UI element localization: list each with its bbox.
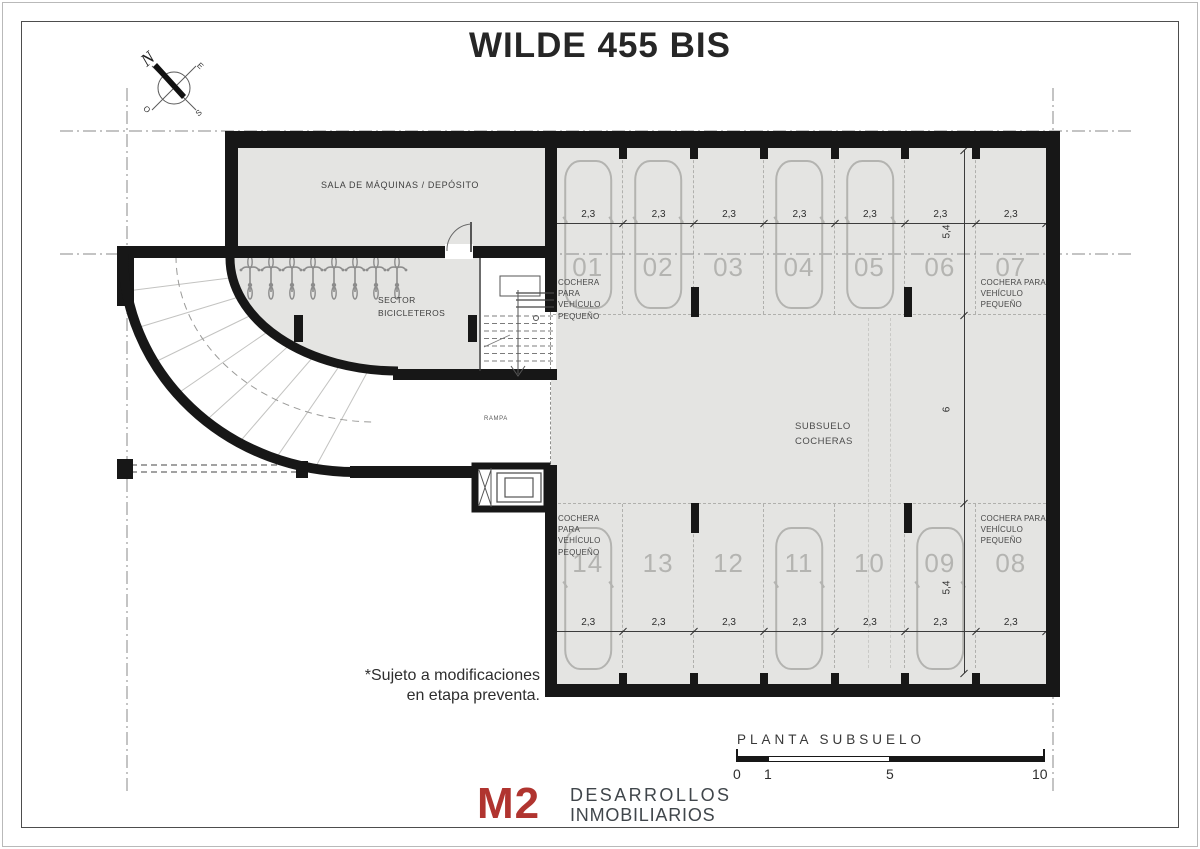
scale-bar-segment	[768, 756, 890, 762]
parking-spot-01: 01COCHERA PARAVEHÍCULOPEQUEÑO	[553, 150, 623, 314]
wall-parking-left-lower	[545, 465, 557, 697]
dimension-label: 2,3	[694, 617, 764, 628]
parking-spot-13: 13	[623, 504, 693, 668]
wall-opening-dashed-line	[550, 382, 551, 464]
bicicleteros-line1: SECTOR	[378, 294, 445, 307]
spot-number: 02	[623, 252, 692, 283]
spot-number: 11	[764, 548, 833, 579]
car-icon	[835, 150, 905, 335]
dimension-label-6: 6	[941, 407, 952, 413]
logo-m2: M2	[477, 779, 540, 829]
wall-right	[1046, 131, 1060, 697]
subsuelo-line1: SUBSUELO	[795, 420, 853, 435]
parking-spot-05: 05	[835, 150, 905, 314]
horizontal-dimension-line	[553, 223, 1046, 224]
parking-spot-10: 10	[835, 504, 905, 668]
small-vehicle-note: COCHERA PARAVEHÍCULOPEQUEÑO	[981, 277, 1046, 311]
dimension-label: 2,3	[764, 209, 834, 220]
dimension-label: 2,3	[976, 617, 1046, 628]
subsuelo-line2: COCHERAS	[795, 435, 853, 450]
dimension-label: 2,3	[976, 209, 1046, 220]
wall-top	[225, 131, 1060, 148]
dimension-label: 2,3	[764, 617, 834, 628]
spot-number: 05	[835, 252, 904, 283]
scale-bar-segment	[890, 756, 1045, 762]
wall-column-stub	[760, 673, 768, 684]
wall-column-stub	[972, 148, 980, 159]
column	[904, 503, 912, 533]
parking-spot-12: 12	[694, 504, 764, 668]
scale-tick-label: 5	[886, 766, 894, 782]
disclaimer-line1: *Sujeto a modificaciones	[300, 666, 540, 686]
logo-line2: INMOBILIARIOS	[570, 806, 731, 826]
wall-column-stub	[760, 148, 768, 159]
column	[691, 287, 699, 317]
spot-number: 13	[623, 548, 692, 579]
subsuelo-cocheras-label: SUBSUELO COCHERAS	[795, 420, 853, 449]
floor-plan-sheet: WILDE 455 BIS N E S O	[0, 0, 1200, 849]
car-icon	[764, 150, 834, 335]
scale-bar-end-tick	[736, 749, 738, 762]
wall-column-stub	[619, 673, 627, 684]
axis-grid	[0, 0, 1200, 849]
wall-sala-right	[545, 131, 557, 312]
parking-spot-14: 14COCHERA PARAVEHÍCULOPEQUEÑO	[553, 504, 623, 668]
ramp-entry-stub-left	[117, 459, 133, 479]
parking-spot-11: 11	[764, 504, 834, 668]
dimension-label: 2,3	[553, 617, 623, 628]
disclaimer-note: *Sujeto a modificaciones en etapa preven…	[300, 666, 540, 706]
dimension-label: 2,3	[694, 209, 764, 220]
wall-stair-bottom	[393, 369, 557, 380]
small-vehicle-note: COCHERA PARAVEHÍCULOPEQUEÑO	[558, 513, 622, 558]
wall-column-stub	[619, 148, 627, 159]
scale-bar-segment	[737, 756, 768, 762]
parking-spot-07: 07COCHERA PARAVEHÍCULOPEQUEÑO	[976, 150, 1046, 314]
bicicleteros-line2: BICICLETEROS	[378, 307, 445, 320]
dimension-label: 2,3	[835, 617, 905, 628]
scale-bar-end-tick	[1043, 749, 1045, 762]
car-icon	[764, 504, 834, 689]
rampa-label: RAMPA	[484, 416, 508, 422]
parking-row-bottom: 14COCHERA PARAVEHÍCULOPEQUEÑO13121110090…	[553, 503, 1046, 668]
spot-number: 03	[694, 252, 763, 283]
scale-tick-label: 1	[764, 766, 772, 782]
spot-number: 12	[694, 548, 763, 579]
dimension-label: 2,3	[835, 209, 905, 220]
wall-column-stub	[690, 148, 698, 159]
scale-tick-label: 0	[733, 766, 741, 782]
wall-column-stub	[901, 148, 909, 159]
ramp-entry-stub-right	[296, 461, 308, 478]
parking-spot-03: 03	[694, 150, 764, 314]
wall-inner-horizontal	[117, 246, 557, 258]
horizontal-dimension-line	[553, 631, 1046, 632]
bicicleteros-label: SECTOR BICICLETEROS	[378, 294, 445, 320]
car-icon	[623, 150, 693, 335]
dimension-label-54-bottom: 5,4	[941, 581, 952, 595]
parking-spot-04: 04	[764, 150, 834, 314]
wall-column-stub	[690, 673, 698, 684]
logo-company-name: DESARROLLOS INMOBILIARIOS	[570, 786, 731, 826]
small-vehicle-note: COCHERA PARAVEHÍCULOPEQUEÑO	[981, 513, 1046, 547]
dimension-label: 2,3	[623, 209, 693, 220]
spot-number: 10	[835, 548, 904, 579]
wall-left-stub	[117, 250, 134, 306]
wall-bottom	[545, 684, 1060, 697]
wall-column-stub	[831, 148, 839, 159]
small-vehicle-note: COCHERA PARAVEHÍCULOPEQUEÑO	[558, 277, 622, 322]
scale-tick-label: 10	[1032, 766, 1048, 782]
page-title: WILDE 455 BIS	[0, 26, 1200, 66]
column	[468, 315, 477, 342]
wall-opening-dashed-line	[550, 312, 551, 370]
sala-label: SALA DE MÁQUINAS / DEPÓSITO	[280, 180, 520, 190]
column	[904, 287, 912, 317]
wall-column-stub	[831, 673, 839, 684]
wall-ramp-bottom	[350, 466, 476, 478]
parking-row-top: 01COCHERA PARAVEHÍCULOPEQUEÑO02030405060…	[553, 150, 1046, 315]
wall-column-stub	[901, 673, 909, 684]
dimension-label-54-top: 5,4	[941, 225, 952, 239]
spot-number: 08	[976, 548, 1046, 579]
column	[294, 315, 303, 342]
dimension-label: 2,3	[623, 617, 693, 628]
parking-spot-02: 02	[623, 150, 693, 314]
dimension-label: 2,3	[553, 209, 623, 220]
column	[691, 503, 699, 533]
dimension-label: 2,3	[905, 209, 975, 220]
spot-number: 04	[764, 252, 833, 283]
disclaimer-line2: en etapa preventa.	[300, 686, 540, 706]
dimension-label: 2,3	[905, 617, 975, 628]
vertical-dimension-line	[964, 150, 965, 673]
plan-title: PLANTA SUBSUELO	[737, 732, 925, 747]
wall-column-stub	[972, 673, 980, 684]
logo-line1: DESARROLLOS	[570, 786, 731, 806]
wall-sala-left	[225, 131, 238, 253]
parking-spot-08: 08COCHERA PARAVEHÍCULOPEQUEÑO	[976, 504, 1046, 668]
